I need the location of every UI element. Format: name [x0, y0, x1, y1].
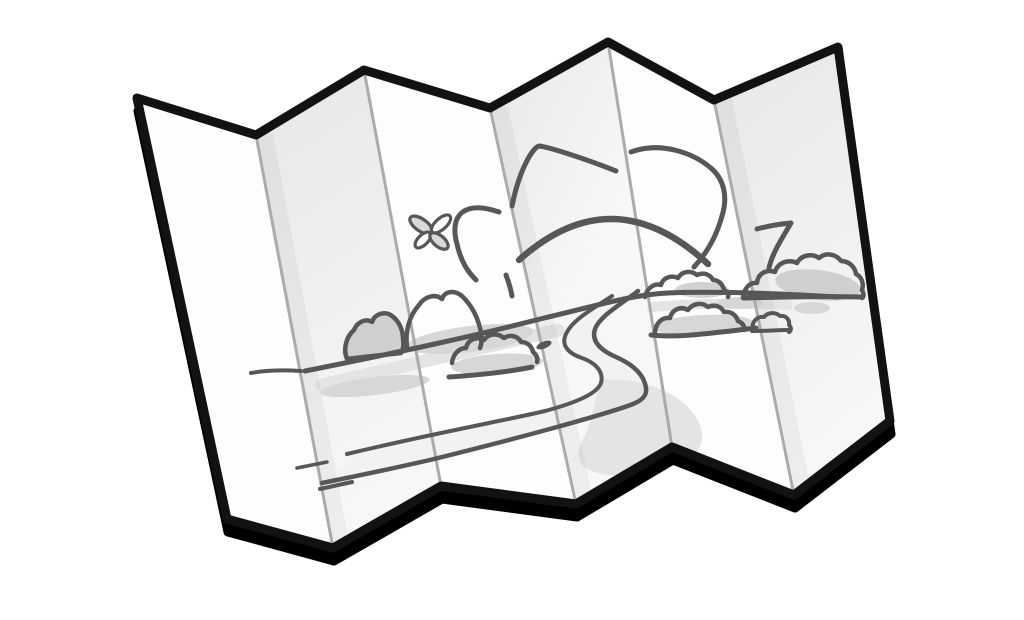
bush-midright-blob-base — [752, 330, 789, 331]
folded-map-illustration — [0, 0, 1024, 620]
ground-dash-right-2 — [794, 302, 830, 314]
bush-far-right-base — [744, 297, 861, 298]
illustration-canvas — [0, 0, 1024, 620]
